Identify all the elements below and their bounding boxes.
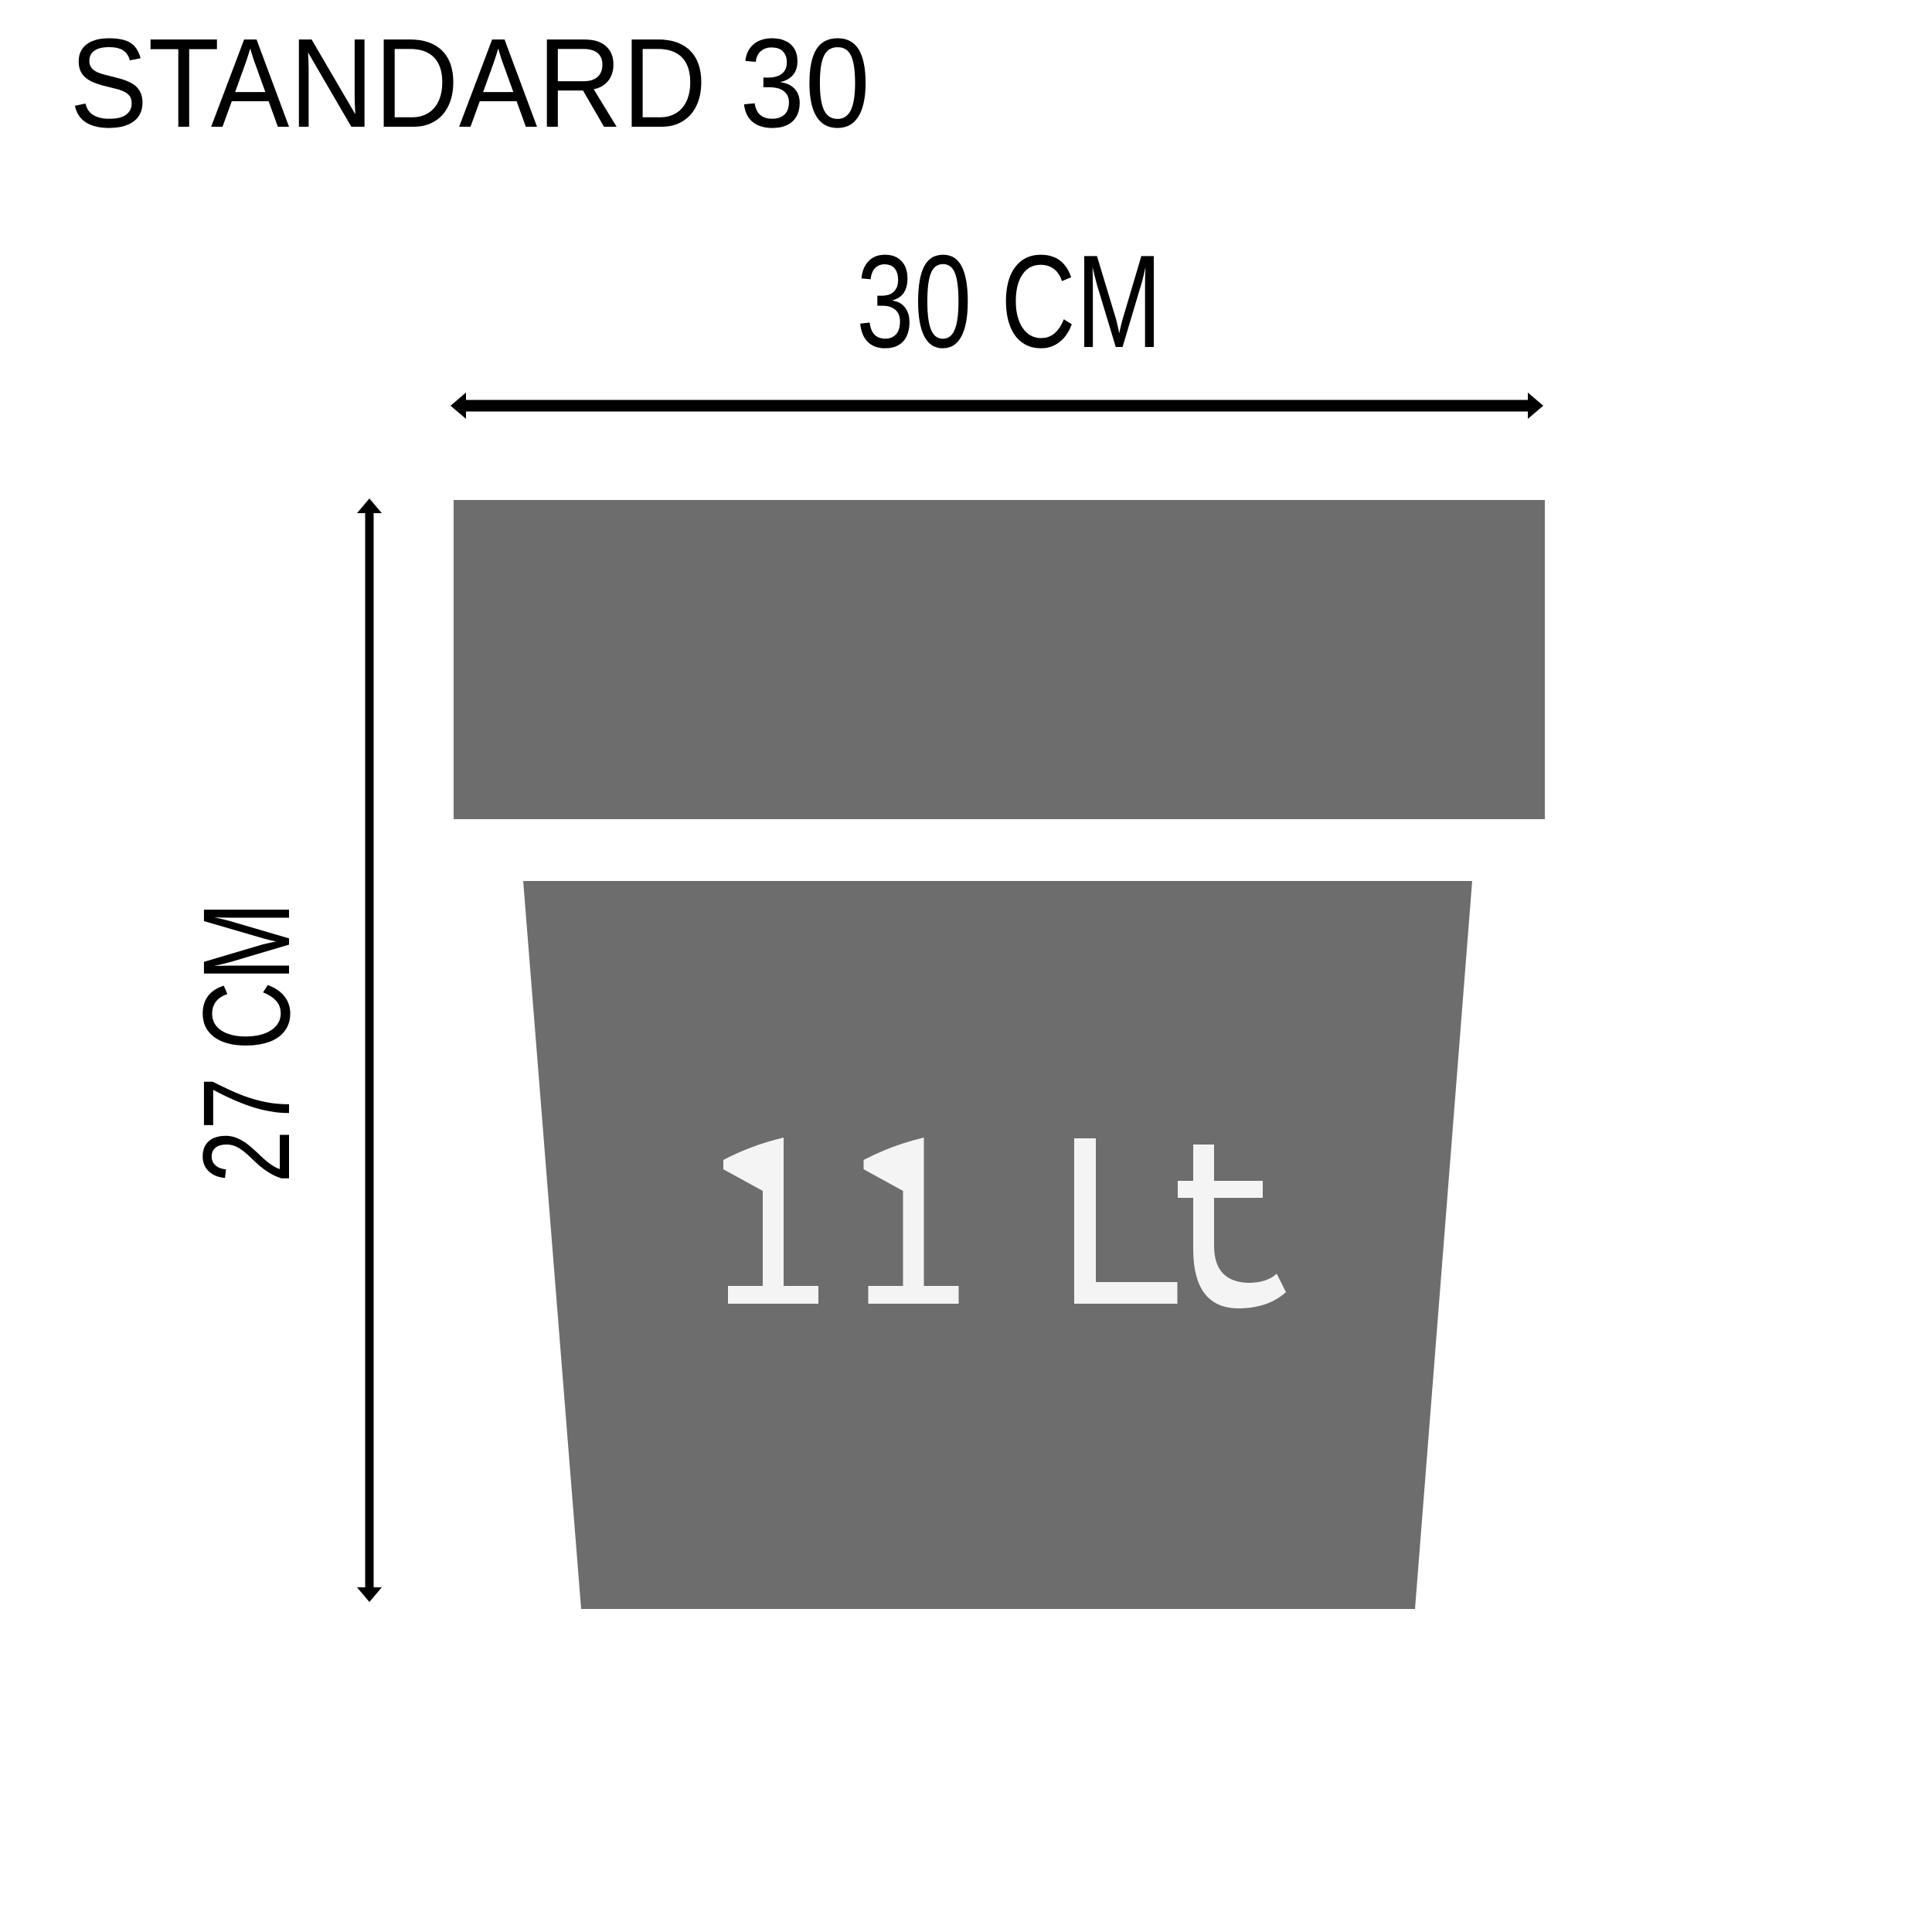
svg-text:30 CM: 30 CM <box>856 228 1162 376</box>
svg-text:STANDARD 30: STANDARD 30 <box>70 12 870 154</box>
svg-text:27 CM: 27 CM <box>177 902 315 1183</box>
